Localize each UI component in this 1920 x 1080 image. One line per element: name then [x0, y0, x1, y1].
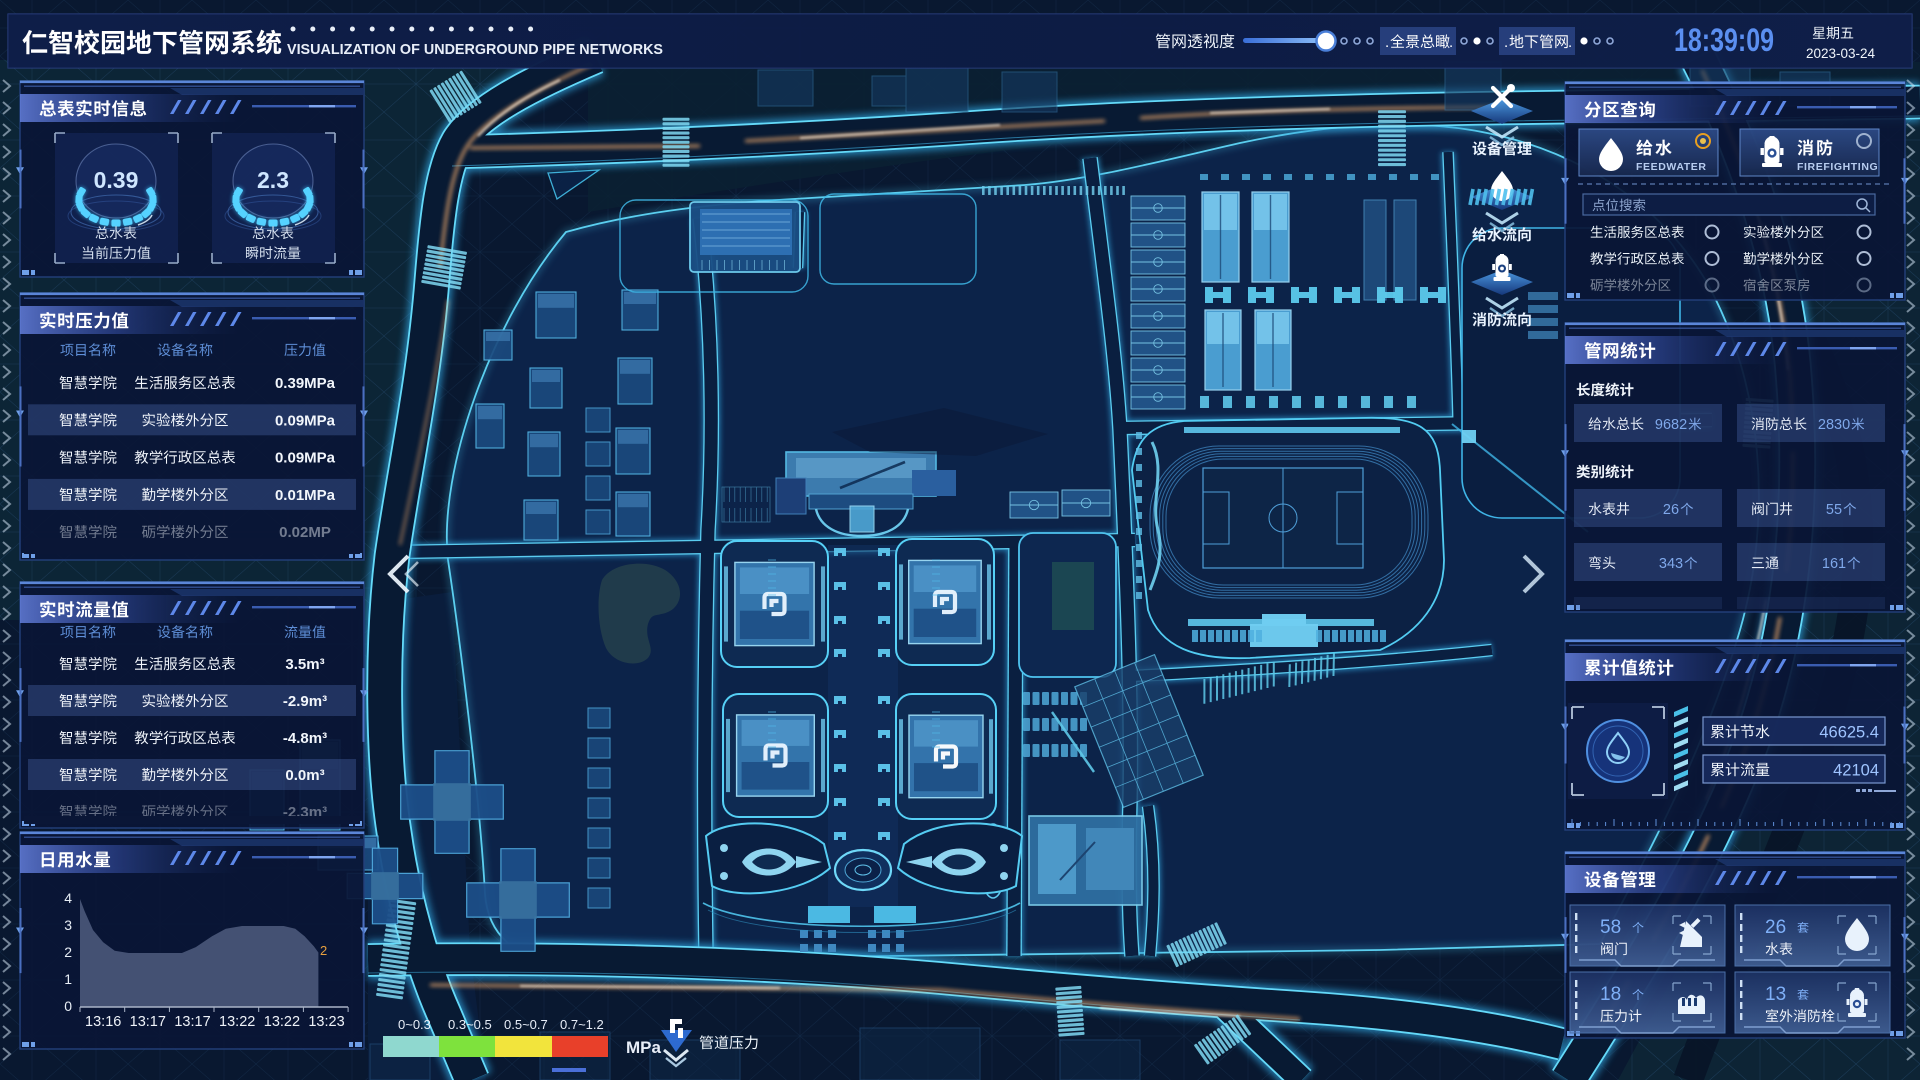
svg-text:3.5m³: 3.5m³: [285, 656, 324, 673]
svg-text:0.7~1.2: 0.7~1.2: [560, 1017, 604, 1032]
svg-text:VISUALIZATION OF UNDERGROUND P: VISUALIZATION OF UNDERGROUND PIPE NETWOR…: [287, 41, 663, 58]
svg-text:26: 26: [1765, 917, 1786, 938]
svg-text:58: 58: [1600, 917, 1621, 938]
svg-text:0.09MPa: 0.09MPa: [275, 450, 336, 467]
svg-text:0.5~0.7: 0.5~0.7: [504, 1017, 548, 1032]
svg-text:4: 4: [64, 890, 72, 906]
svg-text:0.39MPa: 0.39MPa: [275, 375, 336, 392]
svg-text:13:23: 13:23: [308, 1014, 344, 1030]
svg-text:2830: 2830: [1818, 417, 1850, 433]
svg-text:0.0m³: 0.0m³: [285, 767, 324, 784]
svg-text:2023-03-24: 2023-03-24: [1806, 46, 1876, 61]
svg-text:.: .: [1504, 34, 1508, 51]
svg-text:FIREFIGHTING: FIREFIGHTING: [1797, 161, 1878, 173]
svg-text:13:22: 13:22: [264, 1014, 300, 1030]
svg-text:-2.9m³: -2.9m³: [283, 693, 327, 710]
svg-text:0: 0: [64, 998, 72, 1014]
svg-text:.: .: [1385, 34, 1389, 51]
svg-text:1: 1: [64, 971, 72, 987]
svg-text:343: 343: [1659, 556, 1683, 572]
svg-text:13:16: 13:16: [85, 1014, 121, 1030]
svg-text:2: 2: [320, 943, 327, 958]
svg-text:0.09MPa: 0.09MPa: [275, 412, 336, 429]
svg-text:.: .: [1449, 34, 1453, 51]
svg-text:13:17: 13:17: [174, 1014, 210, 1030]
svg-text:55: 55: [1826, 502, 1842, 518]
svg-text:-4.8m³: -4.8m³: [283, 730, 327, 747]
svg-text:18: 18: [1600, 984, 1621, 1005]
svg-text:0~0.3: 0~0.3: [398, 1017, 431, 1032]
svg-text:46625.4: 46625.4: [1819, 724, 1879, 742]
svg-text:9682: 9682: [1655, 417, 1687, 433]
svg-text:0.39: 0.39: [94, 167, 139, 193]
svg-text:13: 13: [1765, 984, 1786, 1005]
svg-text:2.3: 2.3: [257, 167, 289, 193]
svg-text:2: 2: [64, 944, 72, 960]
svg-text:0.3~0.5: 0.3~0.5: [448, 1017, 492, 1032]
svg-text:0.01MPa: 0.01MPa: [275, 487, 336, 504]
svg-text:13:22: 13:22: [219, 1014, 255, 1030]
svg-text:MPa: MPa: [626, 1038, 662, 1057]
svg-text:3: 3: [64, 917, 72, 933]
svg-text:18:39:09: 18:39:09: [1674, 22, 1774, 58]
svg-text:13:17: 13:17: [130, 1014, 166, 1030]
svg-text:.: .: [1568, 34, 1572, 51]
svg-text:26: 26: [1663, 502, 1679, 518]
svg-text:42104: 42104: [1833, 762, 1879, 780]
svg-text:161: 161: [1822, 556, 1846, 572]
svg-text:FEEDWATER: FEEDWATER: [1636, 161, 1707, 173]
